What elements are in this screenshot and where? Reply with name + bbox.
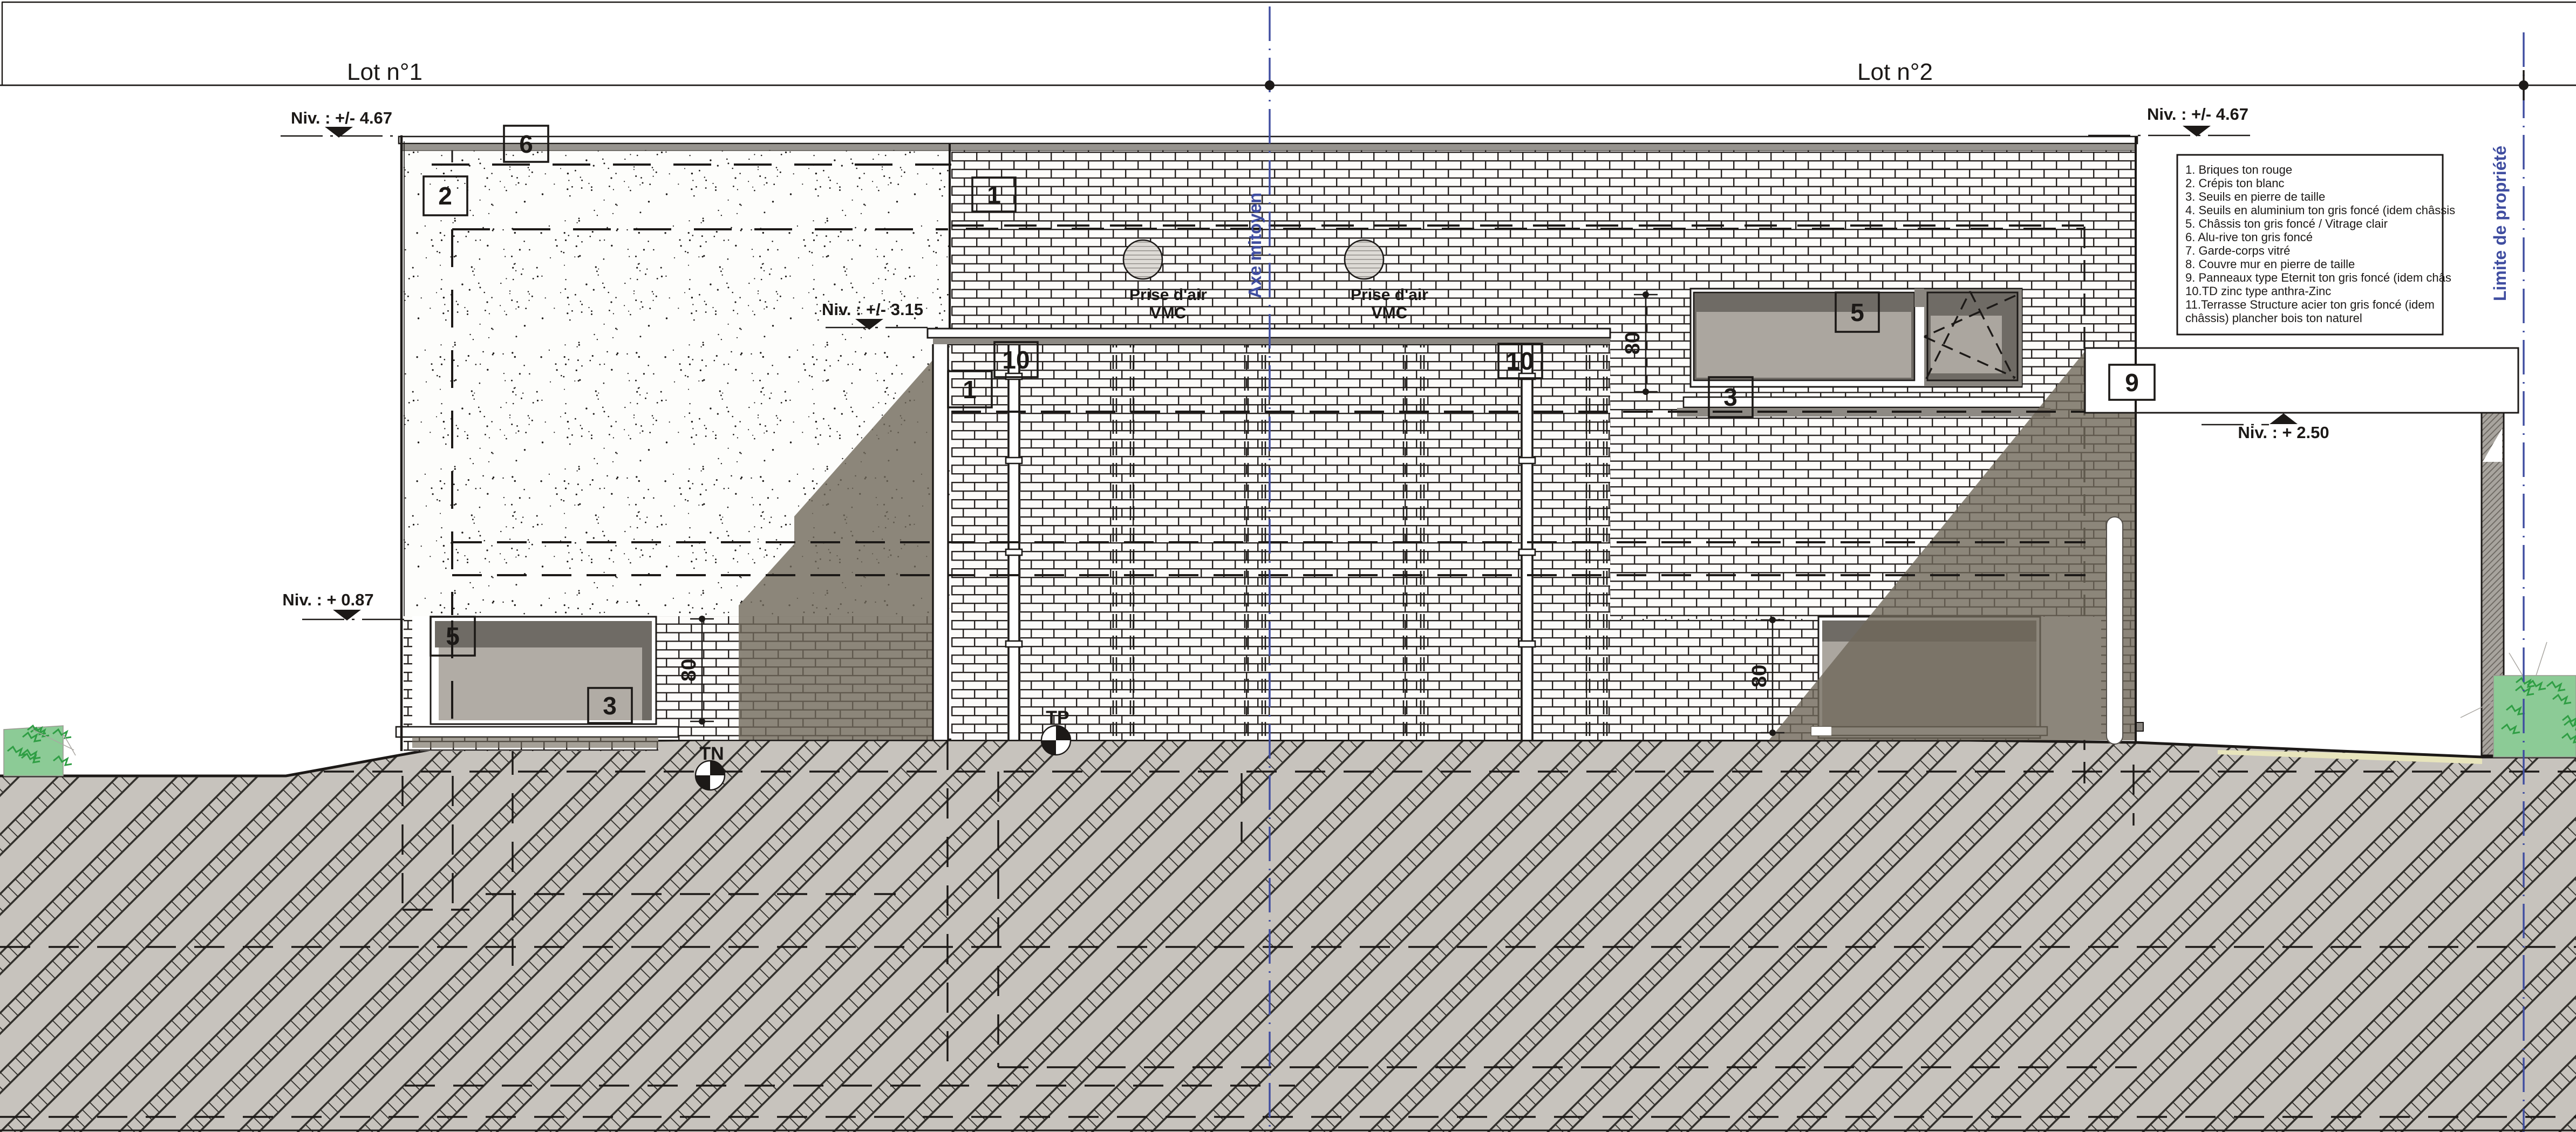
svg-text:8. Couvre mur en pierre de tai: 8. Couvre mur en pierre de taille <box>2185 257 2355 271</box>
svg-text:2. Crépis ton blanc: 2. Crépis ton blanc <box>2185 176 2284 190</box>
svg-text:1: 1 <box>963 376 977 404</box>
svg-text:Niv. : + 0.87: Niv. : + 0.87 <box>282 590 373 609</box>
svg-text:6. Alu-rive ton gris foncé: 6. Alu-rive ton gris foncé <box>2185 230 2313 244</box>
svg-text:Prise d'air: Prise d'air <box>1351 286 1428 304</box>
svg-text:5: 5 <box>446 622 460 650</box>
svg-text:3. Seuils en pierre de taille: 3. Seuils en pierre de taille <box>2185 190 2325 203</box>
svg-text:VMC: VMC <box>1372 304 1408 322</box>
svg-text:Niv. : +/- 4.67: Niv. : +/- 4.67 <box>2147 105 2248 124</box>
svg-text:10.TD zinc type anthra-Zinc: 10.TD zinc type anthra-Zinc <box>2185 284 2331 298</box>
svg-text:Prise d'air: Prise d'air <box>1129 286 1207 304</box>
svg-text:10: 10 <box>1506 347 1534 375</box>
svg-text:TP: TP <box>1046 707 1069 728</box>
svg-text:1: 1 <box>987 181 1001 209</box>
svg-text:TN: TN <box>699 744 724 764</box>
svg-text:châssis) plancher bois ton nat: châssis) plancher bois ton naturel <box>2185 311 2362 325</box>
svg-text:80: 80 <box>1748 665 1771 687</box>
svg-text:Lot n°1: Lot n°1 <box>347 59 422 85</box>
svg-text:5. Châssis ton gris foncé / Vi: 5. Châssis ton gris foncé / Vitrage clai… <box>2185 217 2388 230</box>
svg-text:2: 2 <box>438 182 452 210</box>
svg-text:Niv. : + 2.50: Niv. : + 2.50 <box>2238 423 2329 442</box>
svg-text:6: 6 <box>519 130 533 158</box>
svg-text:11.Terrasse Structure acier to: 11.Terrasse Structure acier ton gris fon… <box>2185 298 2435 311</box>
svg-text:9: 9 <box>2125 369 2139 397</box>
svg-text:VMC: VMC <box>1150 304 1187 322</box>
svg-text:80: 80 <box>1621 332 1644 354</box>
svg-text:4. Seuils en aluminium ton gri: 4. Seuils en aluminium ton gris foncé (i… <box>2185 203 2455 217</box>
svg-text:Axe mitoyen: Axe mitoyen <box>1245 193 1265 298</box>
svg-text:3: 3 <box>1723 383 1737 411</box>
svg-text:9. Panneaux type Eternit ton g: 9. Panneaux type Eternit ton gris foncé … <box>2185 271 2451 284</box>
svg-text:Limite de propriété: Limite de propriété <box>2490 146 2510 301</box>
svg-text:80: 80 <box>678 659 700 681</box>
svg-text:1. Briques ton rouge: 1. Briques ton rouge <box>2185 163 2292 176</box>
svg-text:Niv. : +/- 4.67: Niv. : +/- 4.67 <box>291 108 392 127</box>
svg-text:5: 5 <box>1850 298 1864 326</box>
svg-text:Lot n°2: Lot n°2 <box>1857 59 1933 85</box>
svg-text:Niv. : +/- 3.15: Niv. : +/- 3.15 <box>822 300 923 319</box>
svg-text:7. Garde-corps vitré: 7. Garde-corps vitré <box>2185 244 2290 257</box>
svg-text:10: 10 <box>1002 346 1030 374</box>
svg-text:3: 3 <box>603 692 617 720</box>
